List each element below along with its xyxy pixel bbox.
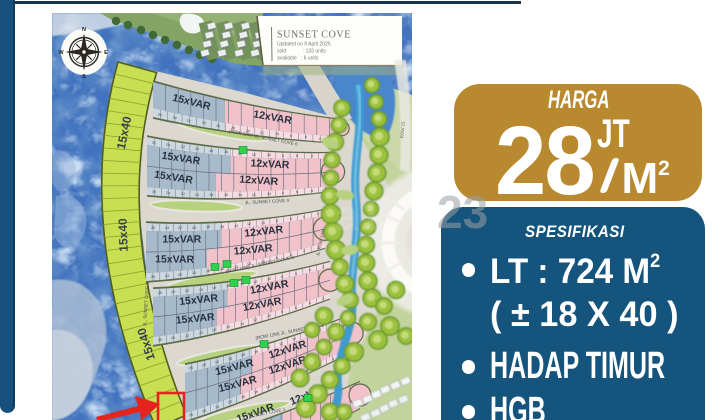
svg-text:16: 16 <box>224 193 228 197</box>
svg-text:24: 24 <box>166 143 171 148</box>
svg-text:16: 16 <box>226 284 230 289</box>
svg-text:15x40: 15x40 <box>116 218 131 252</box>
svg-text:16: 16 <box>220 225 224 229</box>
svg-text:14: 14 <box>240 322 245 327</box>
svg-text:12: 12 <box>247 222 251 226</box>
svg-text:22: 22 <box>181 192 186 197</box>
svg-text:18: 18 <box>206 225 210 229</box>
svg-text:W: W <box>58 50 64 56</box>
svg-text:20: 20 <box>195 147 199 152</box>
svg-text:12: 12 <box>253 318 258 323</box>
svg-text:24: 24 <box>171 290 175 294</box>
svg-text:6: 6 <box>296 190 298 194</box>
svg-text:24: 24 <box>165 226 169 230</box>
svg-text:26: 26 <box>151 226 155 230</box>
svg-text:8: 8 <box>282 191 284 195</box>
svg-text:16: 16 <box>226 325 230 330</box>
svg-text:a1: a1 <box>335 192 382 239</box>
svg-text:18: 18 <box>209 149 213 153</box>
svg-text:26: 26 <box>158 291 162 295</box>
svg-text:20: 20 <box>195 193 199 198</box>
svg-text:12: 12 <box>252 193 256 197</box>
svg-text:18: 18 <box>212 286 216 290</box>
svg-text:26: 26 <box>152 141 157 146</box>
svg-text:22: 22 <box>178 226 182 230</box>
svg-text:4: 4 <box>311 154 313 158</box>
svg-text:18: 18 <box>206 269 210 273</box>
svg-text:S: S <box>82 74 86 80</box>
svg-text:SUNSET COVE: SUNSET COVE <box>277 30 351 41</box>
svg-text:10: 10 <box>275 132 280 137</box>
svg-text:22: 22 <box>181 145 186 150</box>
svg-text:20: 20 <box>192 226 196 230</box>
svg-text:N: N <box>82 27 86 33</box>
svg-text:20: 20 <box>192 271 196 275</box>
svg-text:26: 26 <box>151 275 155 279</box>
svg-text:8: 8 <box>282 154 284 158</box>
svg-text:22: 22 <box>178 273 182 277</box>
svg-text:15xVAR: 15xVAR <box>155 253 194 265</box>
svg-text:12xVAR: 12xVAR <box>239 174 279 189</box>
svg-text:20: 20 <box>199 288 203 292</box>
svg-text:6: 6 <box>296 154 298 158</box>
svg-text:24: 24 <box>166 191 171 196</box>
svg-text:24: 24 <box>171 336 175 340</box>
svg-text:16: 16 <box>224 150 228 154</box>
svg-text:14: 14 <box>238 193 242 197</box>
svg-text:10: 10 <box>267 314 272 319</box>
svg-text:15xVAR: 15xVAR <box>162 233 201 245</box>
svg-text:14: 14 <box>234 224 238 228</box>
svg-text:Updated on 9 April 2025: Updated on 9 April 2025 <box>277 42 331 48</box>
svg-text:E: E <box>104 50 108 56</box>
svg-text:26: 26 <box>158 338 162 342</box>
svg-text:18: 18 <box>209 193 213 197</box>
svg-text:10: 10 <box>267 153 271 157</box>
svg-text:20: 20 <box>199 331 203 335</box>
svg-text:12xVAR: 12xVAR <box>250 157 290 171</box>
svg-text:26: 26 <box>152 190 157 195</box>
svg-text:22: 22 <box>185 289 189 293</box>
svg-text:18: 18 <box>212 328 216 332</box>
svg-text:22: 22 <box>185 334 189 338</box>
svg-text:10: 10 <box>267 192 271 196</box>
svg-text:available : 6 units: available : 6 units <box>277 56 319 62</box>
svg-text:24: 24 <box>165 274 169 278</box>
svg-text:10: 10 <box>261 221 265 225</box>
svg-text:4: 4 <box>311 189 313 193</box>
svg-text:sold : 133 units: sold : 133 units <box>277 49 326 55</box>
